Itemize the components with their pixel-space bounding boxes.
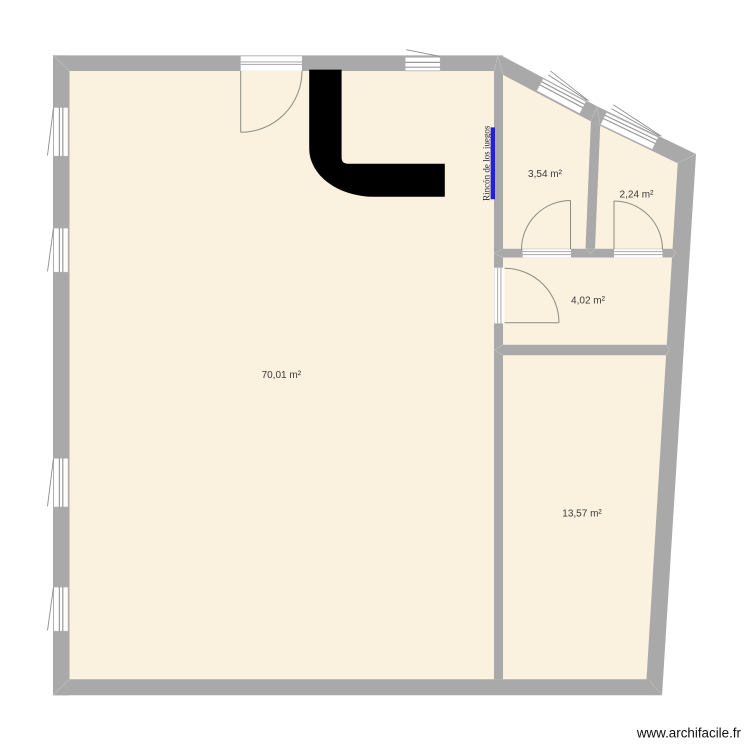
svg-text:13,57 m²: 13,57 m² (562, 509, 602, 520)
svg-text:70,01 m²: 70,01 m² (262, 370, 302, 381)
svg-text:4,02 m²: 4,02 m² (571, 296, 606, 307)
svg-text:Rincón de los juegos: Rincón de los juegos (481, 125, 491, 201)
svg-text:www.archifacile.fr: www.archifacile.fr (636, 726, 742, 741)
svg-text:3,54 m²: 3,54 m² (528, 169, 563, 180)
svg-text:2,24 m²: 2,24 m² (620, 190, 655, 201)
